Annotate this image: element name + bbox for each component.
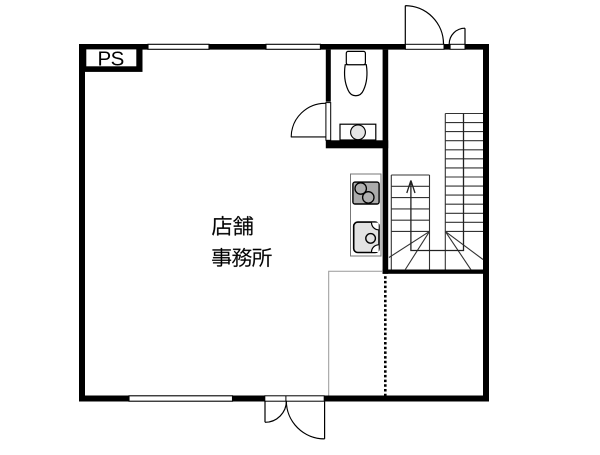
svg-text:PS: PS bbox=[98, 47, 124, 70]
